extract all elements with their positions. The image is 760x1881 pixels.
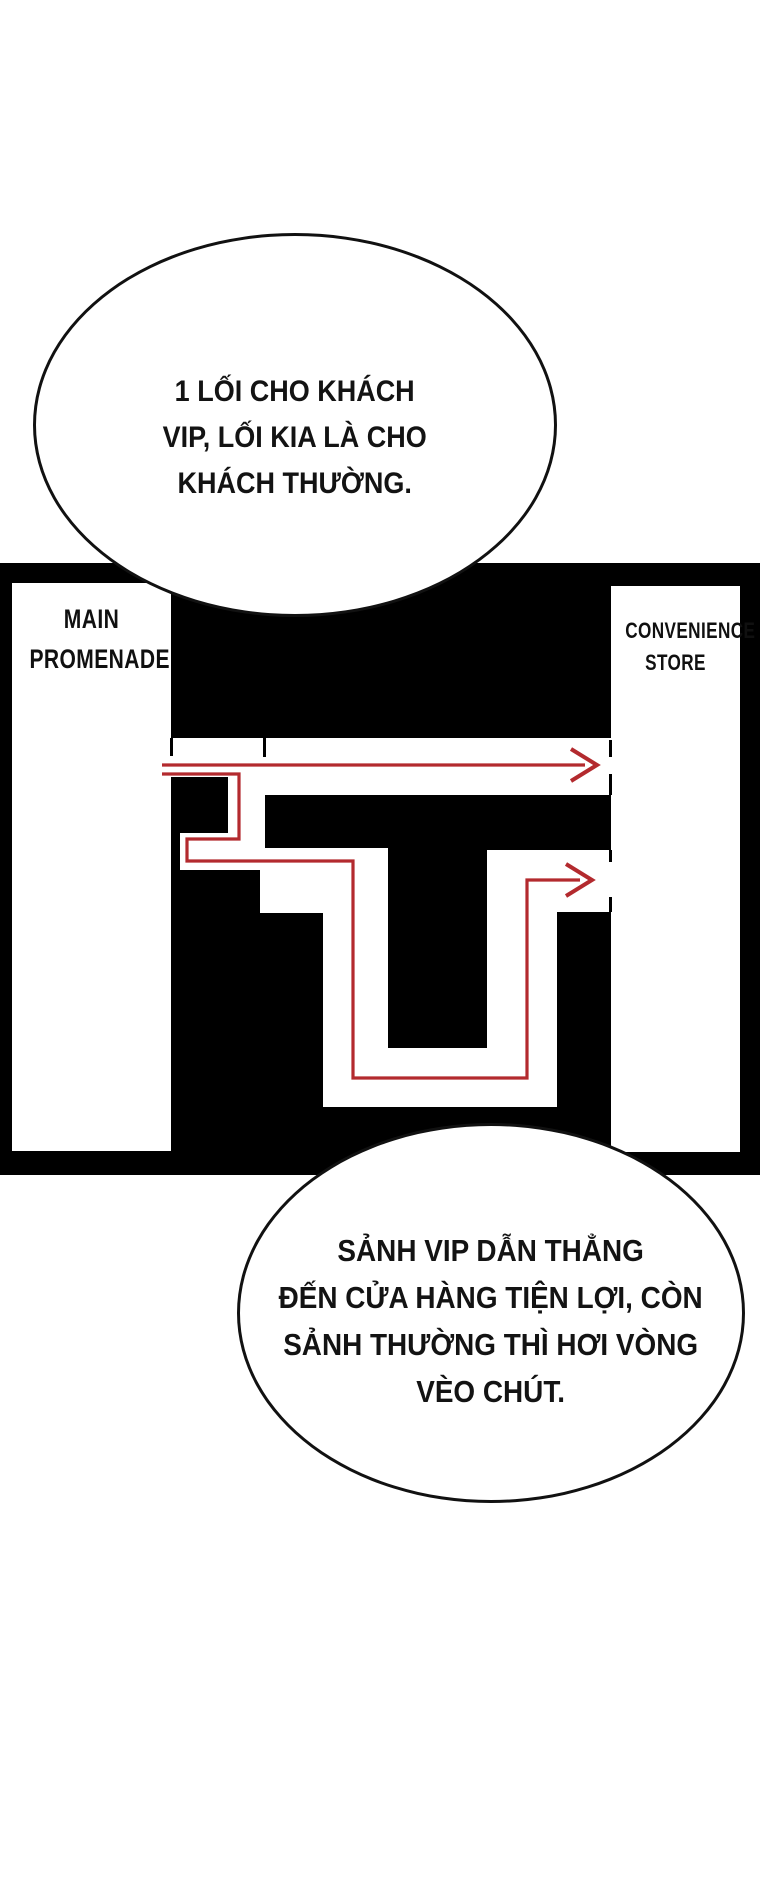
- label-line: PROMENADE: [29, 639, 153, 679]
- door-dash: [170, 738, 173, 756]
- label-line: CONVENIENCE: [625, 615, 726, 647]
- speech-bubble-top-text: 1 LỐI CHO KHÁCH VIP, LỐI KIA LÀ CHO KHÁC…: [163, 369, 427, 507]
- door-dash: [609, 850, 612, 862]
- door-dash: [609, 897, 612, 912]
- label-line: MAIN: [29, 599, 153, 639]
- door-dash: [609, 774, 612, 795]
- speech-line: VIP, LỐI KIA LÀ CHO: [163, 415, 427, 461]
- speech-bubble-top: 1 LỐI CHO KHÁCH VIP, LỐI KIA LÀ CHO KHÁC…: [33, 233, 557, 617]
- speech-line: KHÁCH THƯỜNG.: [163, 461, 427, 507]
- convenience-store-label: CONVENIENCE STORE: [611, 615, 740, 679]
- door-dash: [609, 740, 612, 757]
- convenience-store-label-text: CONVENIENCE STORE: [625, 615, 726, 679]
- speech-line: 1 LỐI CHO KHÁCH: [163, 369, 427, 415]
- main-promenade-label: MAIN PROMENADE: [12, 599, 171, 679]
- maze-pocket: [260, 870, 323, 913]
- speech-line: VÈO CHÚT.: [279, 1368, 703, 1415]
- speech-line: ĐẾN CỬA HÀNG TIỆN LỢI, CÒN: [279, 1274, 703, 1321]
- speech-bubble-bottom: SẢNH VIP DẪN THẲNG ĐẾN CỬA HÀNG TIỆN LỢI…: [237, 1123, 745, 1503]
- maze-wall-notch: [171, 777, 228, 833]
- label-line: STORE: [625, 647, 726, 679]
- comic-panel-page: MAIN PROMENADE CONVENIENCE STORE 1 LỐI C…: [0, 0, 760, 1881]
- door-dash: [263, 738, 266, 757]
- speech-line: SẢNH VIP DẪN THẲNG: [279, 1227, 703, 1274]
- speech-line: SẢNH THƯỜNG THÌ HƠI VÒNG: [279, 1321, 703, 1368]
- speech-bubble-bottom-text: SẢNH VIP DẪN THẲNG ĐẾN CỬA HÀNG TIỆN LỢI…: [279, 1227, 703, 1415]
- main-promenade-label-text: MAIN PROMENADE: [29, 599, 153, 679]
